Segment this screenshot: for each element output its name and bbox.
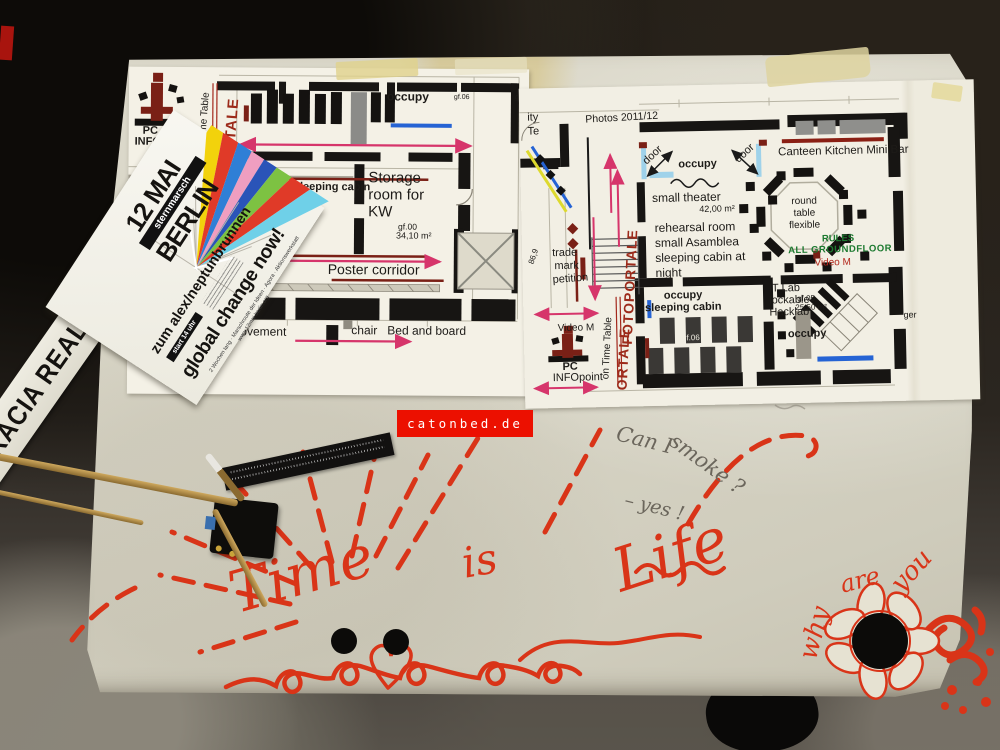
yellow-dot — [215, 545, 222, 552]
label-storage-area: 34,10 m² — [396, 231, 432, 241]
label-rules-2: ALL GROUNDFLOOR — [788, 244, 892, 256]
label-poster-corridor: Poster corridor — [328, 262, 420, 277]
label-trade-1: trade — [552, 248, 577, 260]
label-trade-2: mark — [554, 261, 579, 273]
label-storage-3: KW — [368, 204, 392, 220]
label-storage-2: room for — [368, 187, 424, 203]
label-occupy-top: occupy — [387, 90, 429, 103]
floorplan-right-drawing — [519, 79, 981, 408]
label-gf06-top: gf.06 — [454, 94, 470, 101]
watermark: catonbed.de — [397, 410, 533, 437]
label-cabin-gf: gf.06 — [682, 334, 700, 343]
label-occupy-cabin-2: sleeping cabin — [633, 301, 733, 315]
label-occupy-doors: occupy — [678, 159, 717, 171]
label-rules-1: RULES — [822, 234, 854, 245]
label-chair-bed: chair Bed and board — [351, 324, 466, 337]
photo-table-scene: OCRACIA REAL YA — [0, 0, 1000, 750]
label-sleeping-2: night — [655, 266, 681, 279]
label-storage-1: Storage — [368, 170, 421, 186]
watermark-text: catonbed.de — [407, 416, 523, 431]
floorplan-right-sheet: ity Te Photos 2011/12 door door occupy s… — [519, 79, 981, 408]
label-sleeping-1: sleeping cabin at — [655, 250, 745, 264]
label-theater-area: 42,00 m² — [699, 204, 735, 214]
label-asamblea: small Asamblea — [655, 235, 739, 249]
red-tag — [0, 26, 14, 61]
blue-tape-bit — [205, 516, 216, 530]
tape-piece — [455, 57, 528, 76]
label-occupy-it: occupy — [788, 328, 827, 340]
label-frag-ger: ger — [903, 311, 916, 321]
label-round-1: round — [774, 196, 834, 208]
label-round-2: table — [774, 208, 834, 220]
label-frag-te: Te — [527, 126, 539, 138]
label-it-area: 25,50 m² — [795, 303, 827, 312]
label-round-3: flexible — [775, 220, 835, 232]
label-infopoint: INFOpoint — [553, 372, 603, 385]
label-rehearsal: rehearsal room — [655, 220, 736, 234]
label-video-m-1: Video M — [558, 323, 595, 334]
label-video-m-2: Video M — [814, 258, 851, 269]
label-frag-ity: ity — [527, 112, 538, 124]
label-small-theater: small theater — [652, 191, 721, 205]
